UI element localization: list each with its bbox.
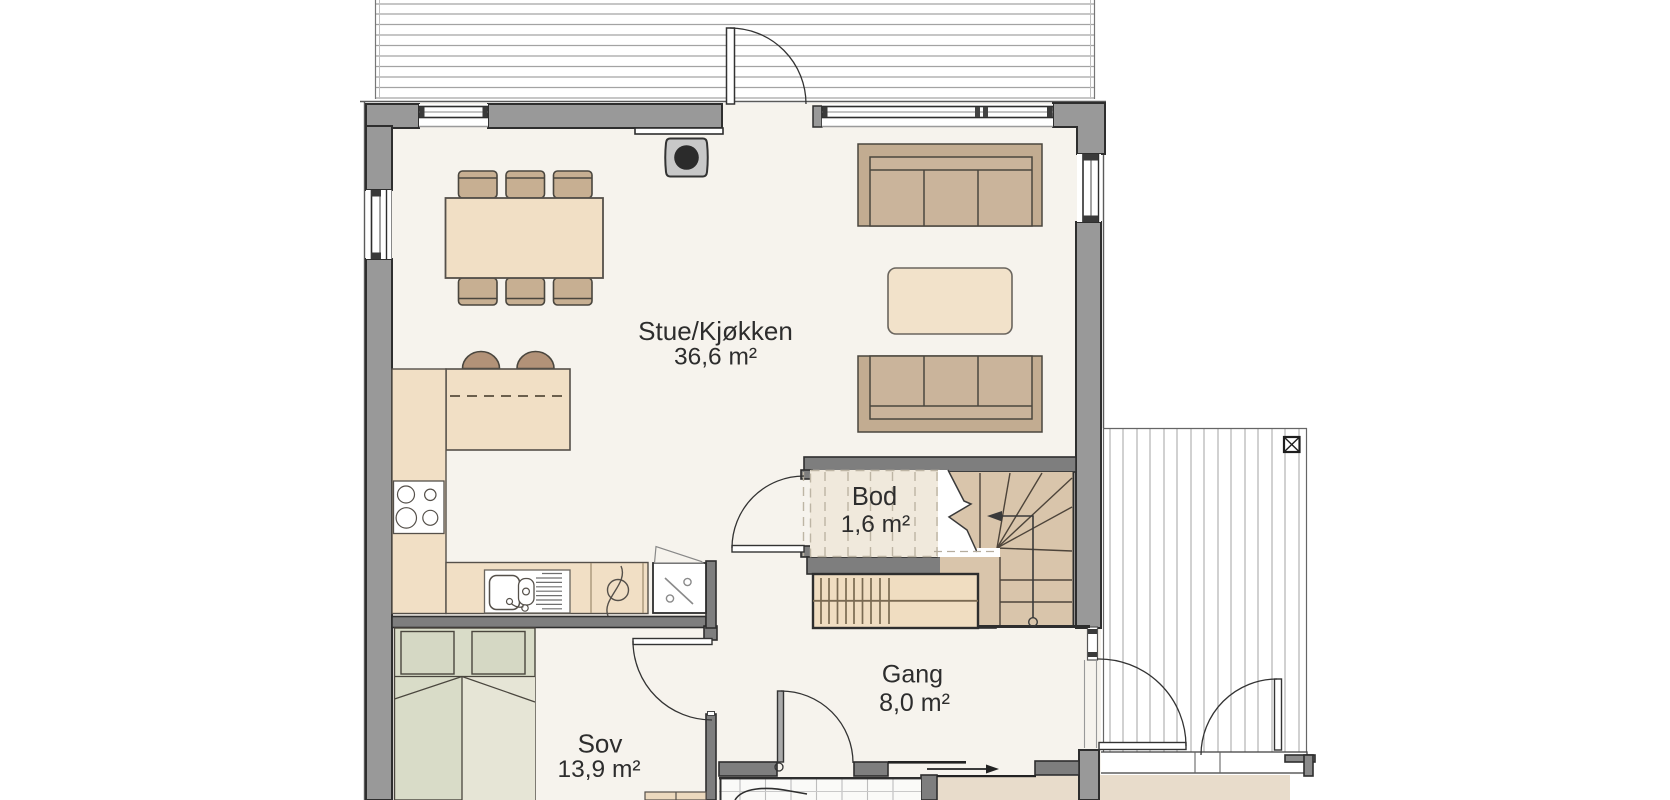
svg-text:Stue/Kjøkken: Stue/Kjøkken <box>638 316 793 346</box>
svg-text:36,6 m²: 36,6 m² <box>674 344 757 371</box>
svg-text:8,0 m²: 8,0 m² <box>879 689 950 717</box>
svg-text:13,9 m²: 13,9 m² <box>557 756 640 783</box>
svg-text:Bod: Bod <box>852 483 897 511</box>
svg-text:1,6 m²: 1,6 m² <box>841 511 910 538</box>
svg-text:Sov: Sov <box>578 729 623 759</box>
svg-text:Gang: Gang <box>882 661 943 689</box>
